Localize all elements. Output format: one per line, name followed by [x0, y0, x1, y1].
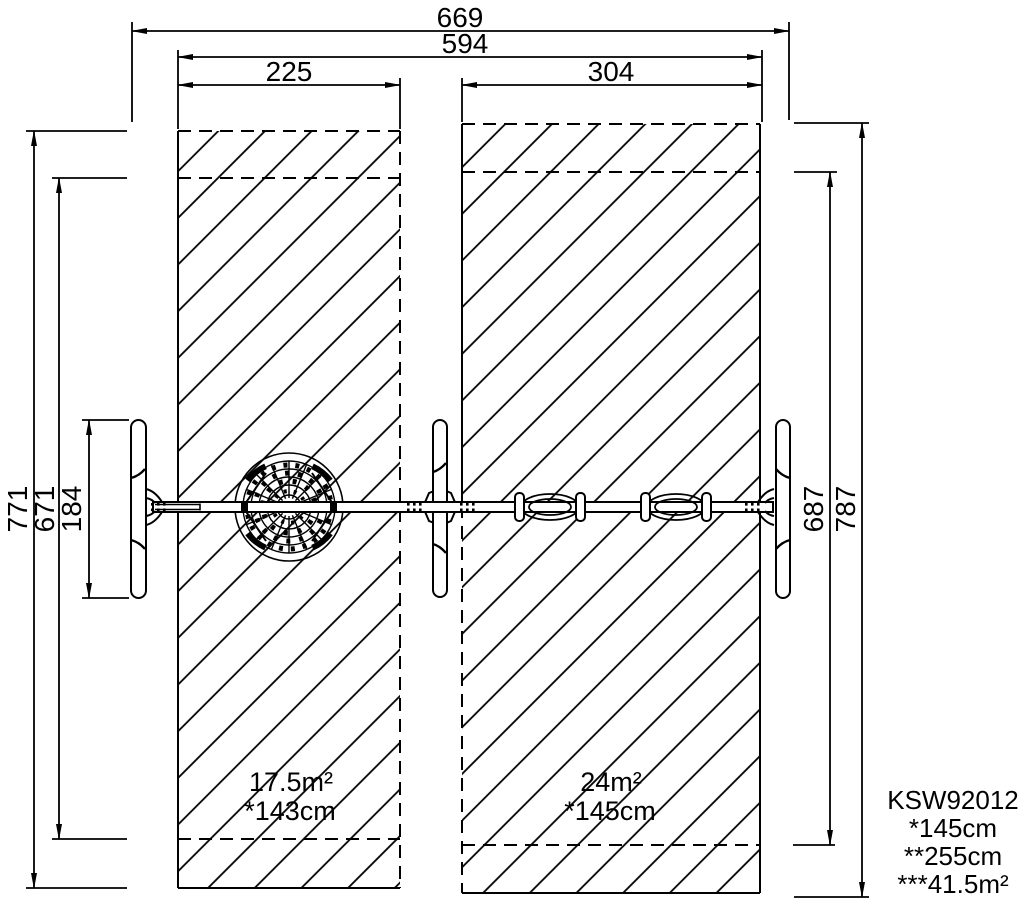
- post-right: [776, 420, 790, 598]
- dim-label-frame-width: 594: [442, 28, 489, 59]
- dim-label-post-length: 184: [56, 486, 87, 533]
- middle-post-beam-pass: [420, 502, 462, 512]
- zone-right-area-label: 24m²: [580, 767, 642, 797]
- basket-hanger-right: [330, 502, 337, 513]
- seat-hanger: [702, 493, 711, 521]
- seat-hanger: [576, 493, 585, 521]
- dimension-left-zone-width: 225: [178, 56, 400, 129]
- dimension-post-length: 184: [56, 420, 129, 598]
- dim-label-left-zone-width: 225: [266, 56, 313, 87]
- zone-left-label: 17.5m² *143cm: [244, 767, 336, 826]
- technical-drawing-canvas: 669 594 225 304 771 671 184: [0, 0, 1024, 904]
- dimension-right-zone-width: 304: [462, 56, 762, 122]
- legend-fall-height: *145cm: [909, 813, 997, 843]
- zone-right-fall-height-label: *145cm: [564, 796, 656, 826]
- legend-product-code: KSW92012: [887, 785, 1019, 815]
- legend-beam-height: **255cm: [904, 841, 1002, 871]
- zone-left-area-label: 17.5m²: [249, 767, 333, 797]
- dim-label-right-inner-height: 687: [798, 486, 829, 533]
- dim-label-right-zone-width: 304: [588, 56, 635, 87]
- legend-total-area: ***41.5m²: [897, 869, 1009, 899]
- seat-hanger: [515, 493, 524, 521]
- seat-hanger: [641, 493, 650, 521]
- basket-hanger-left: [241, 502, 248, 513]
- dim-label-right-zone-height: 787: [830, 486, 861, 533]
- post-left: [131, 420, 146, 598]
- product-legend: KSW92012 *145cm **255cm ***41.5m²: [887, 785, 1019, 899]
- zone-left-fall-height-label: *143cm: [244, 796, 336, 826]
- dimension-overall-width: 669: [132, 2, 789, 122]
- swing-plan-drawing: 669 594 225 304 771 671 184: [0, 0, 1024, 904]
